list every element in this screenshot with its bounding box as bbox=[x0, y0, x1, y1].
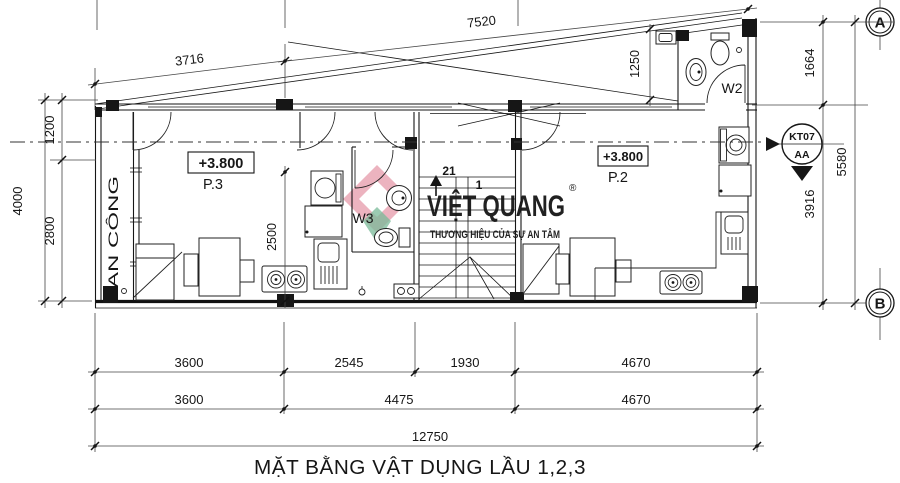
section-marker-code: KT07 bbox=[789, 131, 815, 143]
dim-7520: 7520 bbox=[466, 12, 496, 30]
room-label-p2: P.2 bbox=[608, 170, 628, 186]
w3-toilet-icon bbox=[399, 228, 410, 247]
dimensions-bottom: 3600 2545 1930 4670 3600 4475 4670 12750 bbox=[88, 313, 764, 452]
dim-1250: 1250 bbox=[628, 50, 642, 78]
floorplan-canvas: VIỆT QUANG ® THƯƠNG HIỆU CỦA SỰ AN TÂM bbox=[0, 0, 900, 483]
dim-row2-4475: 4475 bbox=[385, 392, 414, 407]
room-label-w3: W3 bbox=[353, 210, 374, 226]
room-p3-furniture bbox=[122, 238, 308, 300]
wardrobe-p3 bbox=[136, 244, 174, 300]
level-label-p3: +3.800 bbox=[199, 156, 244, 172]
bed-p3 bbox=[199, 238, 240, 296]
bathroom-w2-fixtures bbox=[656, 31, 742, 86]
dim-2500: 2500 bbox=[265, 223, 279, 251]
washer-icon bbox=[311, 171, 343, 205]
grid-bubble-a: A bbox=[866, 0, 894, 50]
watermark-registered: ® bbox=[569, 183, 577, 194]
room-label-w2: W2 bbox=[722, 80, 743, 96]
dimensions-right: 1664 3916 5580 bbox=[752, 15, 893, 310]
bed-p3-pillow bbox=[184, 254, 198, 286]
drawing-title: MẶT BẰNG VẬT DỤNG LẦU 1,2,3 bbox=[254, 455, 586, 479]
room-label-balcony: BAN CÔNG bbox=[105, 176, 121, 304]
kitchen-sink-icon bbox=[314, 239, 347, 289]
stair-step-1: 1 bbox=[476, 178, 483, 192]
room-label-p3: P.3 bbox=[203, 177, 223, 193]
section-marker: KT07 AA bbox=[766, 124, 822, 181]
w2-toilet-icon bbox=[711, 33, 729, 40]
floor-drain-icon bbox=[359, 289, 365, 295]
watermark-tagline: THƯƠNG HIỆU CỦA SỰ AN TÂM bbox=[430, 228, 560, 241]
watermark-brand: VIỆT QUANG bbox=[427, 189, 565, 223]
side-table-p3 bbox=[240, 260, 254, 282]
dim-total-12750: 12750 bbox=[412, 429, 448, 444]
bed-p2-pillow bbox=[556, 254, 569, 284]
fridge-p2-icon bbox=[719, 165, 751, 196]
side-table-p2 bbox=[616, 260, 631, 282]
section-marker-label: AA bbox=[794, 149, 810, 161]
w2-sink-icon bbox=[686, 59, 706, 86]
dim-row1-3600: 3600 bbox=[175, 355, 204, 370]
dim-2800: 2800 bbox=[42, 217, 57, 246]
washer-p2-icon bbox=[719, 127, 749, 163]
stair-break-lines bbox=[419, 257, 514, 299]
stair-step-21: 21 bbox=[442, 164, 456, 178]
dim-row1-4670: 4670 bbox=[622, 355, 651, 370]
dim-1664: 1664 bbox=[802, 49, 817, 78]
dim-row2-4670: 4670 bbox=[622, 392, 651, 407]
dim-4000: 4000 bbox=[10, 187, 25, 216]
dim-3916: 3916 bbox=[802, 190, 817, 219]
w3-sink-icon bbox=[387, 186, 412, 211]
bed-p2 bbox=[570, 238, 615, 296]
grid-bubble-b-label: B bbox=[875, 296, 886, 313]
dim-3716: 3716 bbox=[174, 50, 205, 68]
level-label-p2: +3.800 bbox=[603, 149, 643, 164]
extension-lines-top bbox=[95, 0, 518, 110]
grid-bubble-b: B bbox=[866, 268, 894, 340]
grid-bubble-a-label: A bbox=[875, 15, 886, 32]
dim-row2-3600: 3600 bbox=[175, 392, 204, 407]
dim-5580: 5580 bbox=[834, 148, 849, 177]
fridge-icon bbox=[305, 206, 342, 237]
dim-row1-1930: 1930 bbox=[451, 355, 480, 370]
floorplan-drawing: VIỆT QUANG ® THƯƠNG HIỆU CỦA SỰ AN TÂM bbox=[0, 0, 900, 483]
dimensions-left: 4000 1200 2800 bbox=[10, 93, 98, 308]
dim-row1-2545: 2545 bbox=[335, 355, 364, 370]
dim-1200: 1200 bbox=[42, 116, 57, 145]
